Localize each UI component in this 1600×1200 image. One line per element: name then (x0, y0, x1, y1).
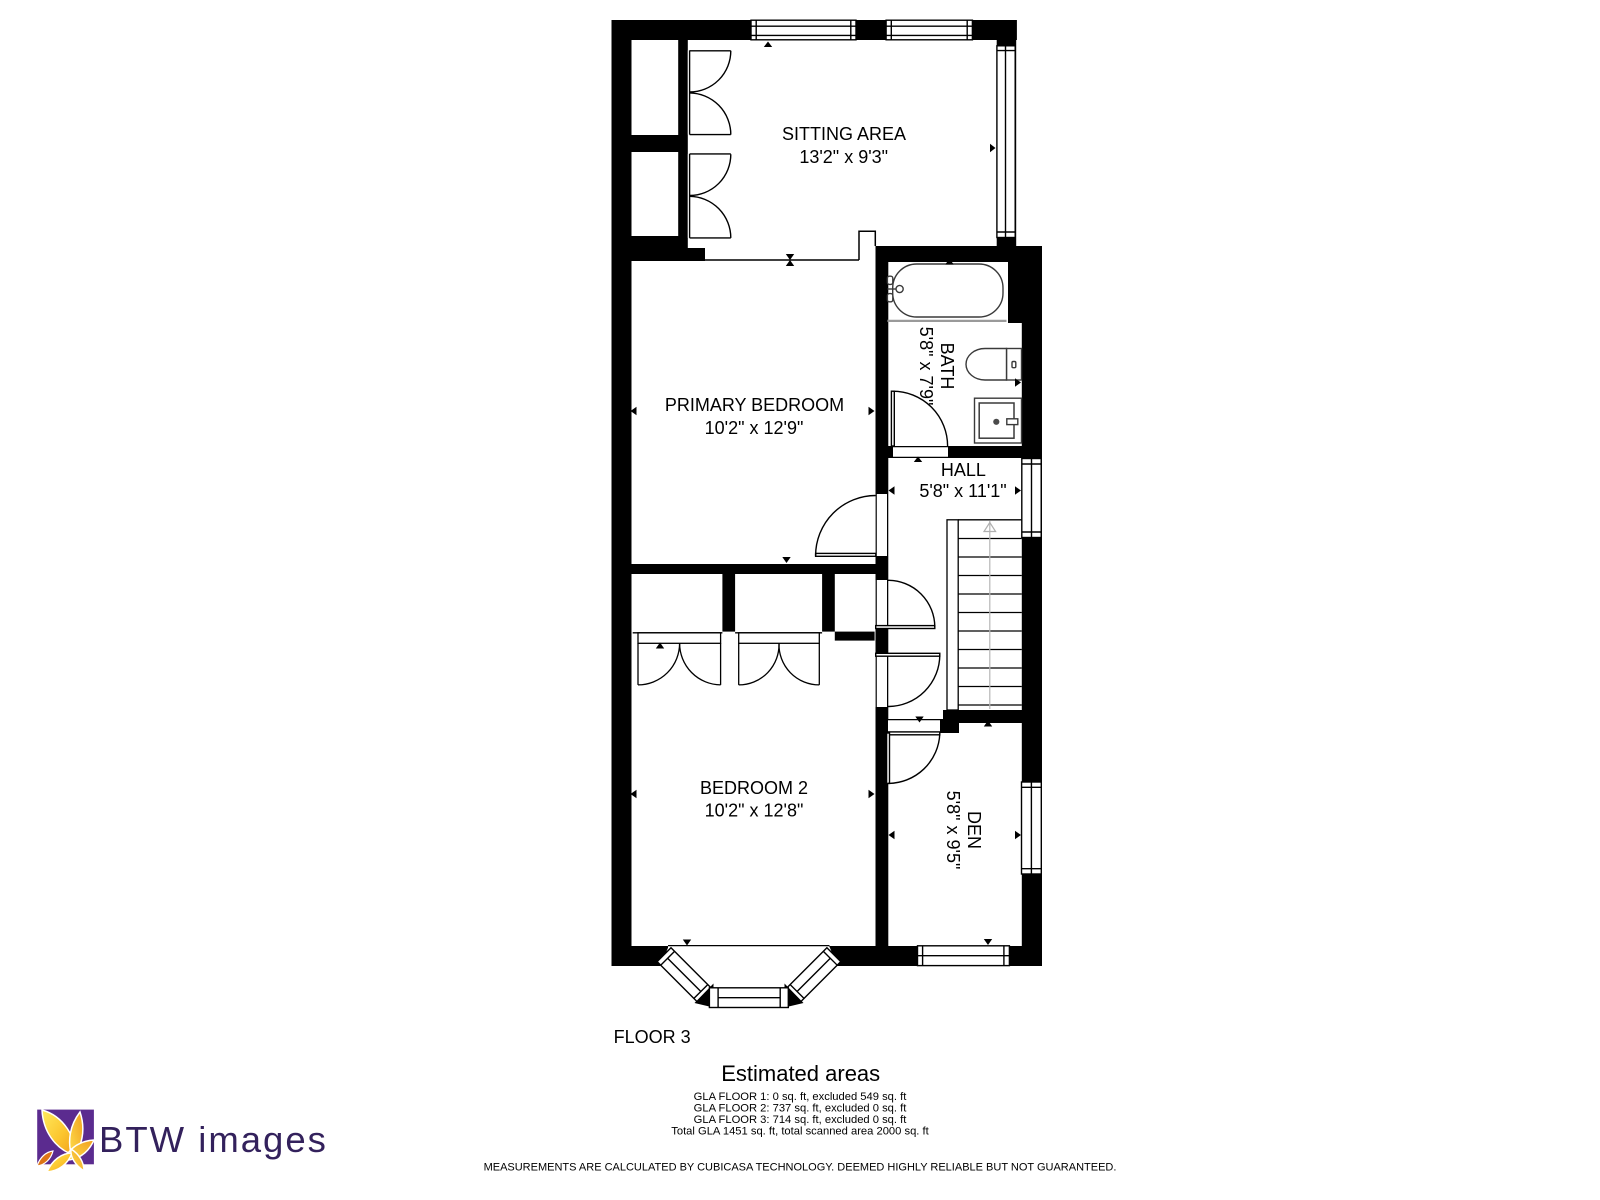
svg-text:5'8" x 7'9": 5'8" x 7'9" (916, 327, 936, 406)
svg-text:SITTING AREA: SITTING AREA (782, 124, 906, 144)
svg-text:BEDROOM 2: BEDROOM 2 (700, 778, 808, 798)
svg-text:5'8" x 9'5": 5'8" x 9'5" (943, 791, 963, 870)
svg-text:5'8" x 11'1": 5'8" x 11'1" (919, 481, 1006, 501)
svg-text:Total GLA 1451 sq. ft, total s: Total GLA 1451 sq. ft, total scanned are… (671, 1125, 929, 1137)
svg-text:DEN: DEN (964, 811, 984, 849)
svg-text:GLA FLOOR 2: 737 sq. ft, exclu: GLA FLOOR 2: 737 sq. ft, excluded 0 sq. … (694, 1102, 908, 1114)
svg-text:FLOOR 3: FLOOR 3 (614, 1027, 691, 1047)
svg-text:GLA FLOOR 3: 714 sq. ft, exclu: GLA FLOOR 3: 714 sq. ft, excluded 0 sq. … (694, 1114, 908, 1126)
svg-text:MEASUREMENTS ARE CALCULATED BY: MEASUREMENTS ARE CALCULATED BY CUBICASA … (484, 1162, 1117, 1174)
svg-text:PRIMARY BEDROOM: PRIMARY BEDROOM (665, 395, 844, 415)
svg-text:Estimated areas: Estimated areas (721, 1061, 880, 1086)
svg-text:10'2" x 12'9": 10'2" x 12'9" (705, 418, 804, 438)
svg-text:BATH: BATH (937, 343, 957, 390)
svg-text:HALL: HALL (941, 460, 986, 480)
svg-text:13'2" x 9'3": 13'2" x 9'3" (799, 147, 888, 167)
svg-text:BTW images: BTW images (99, 1119, 328, 1160)
svg-text:10'2" x 12'8": 10'2" x 12'8" (705, 801, 804, 821)
svg-text:GLA FLOOR 1: 0 sq. ft, exclude: GLA FLOOR 1: 0 sq. ft, excluded 549 sq. … (694, 1091, 908, 1103)
